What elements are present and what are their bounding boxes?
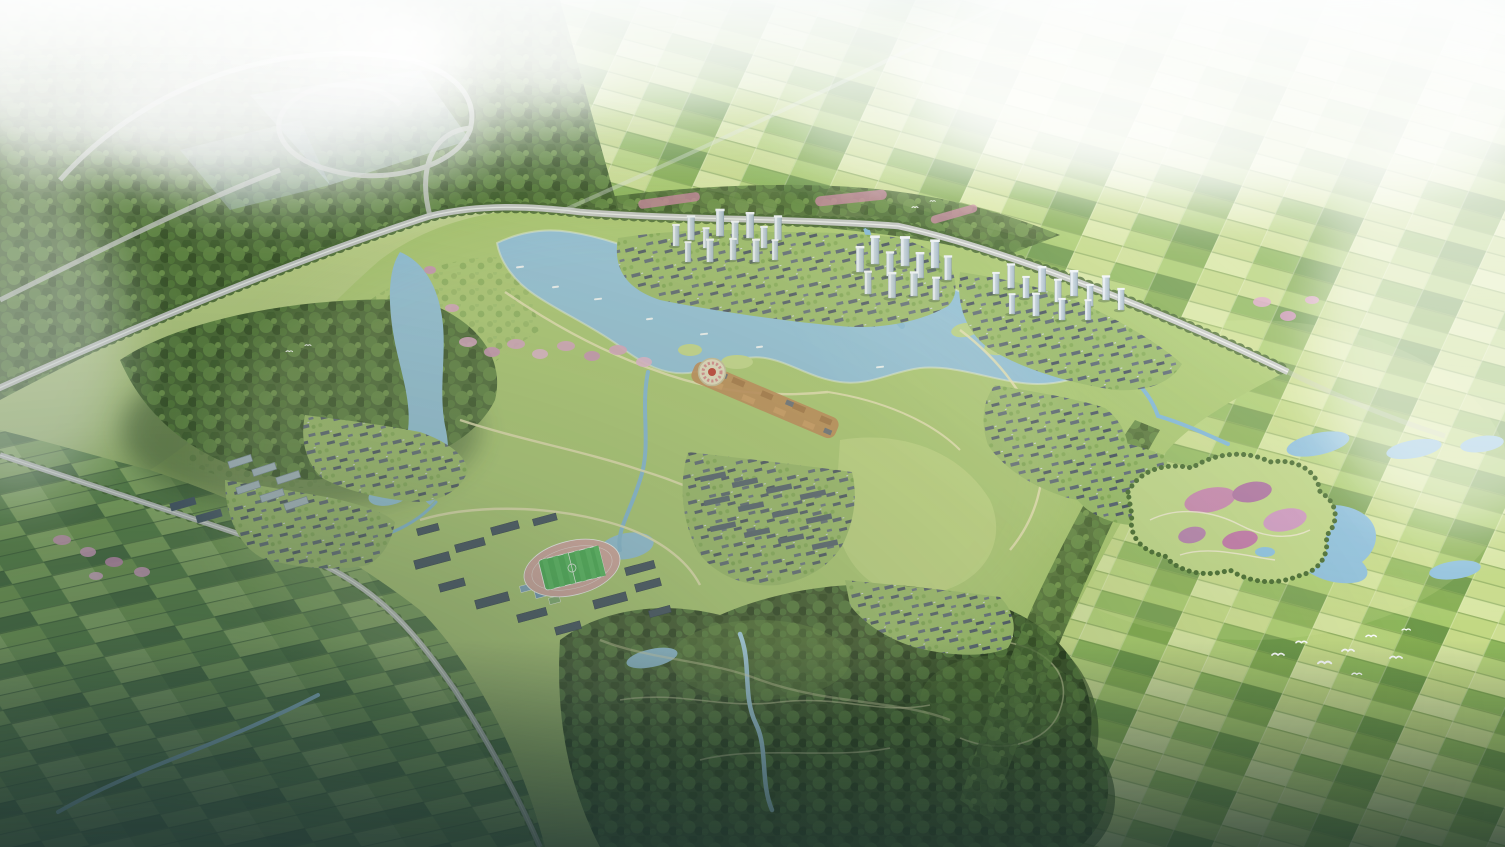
atmosphere [0,0,1505,847]
aerial-masterplan-render [0,0,1505,847]
corner-shadow-southwest [0,0,1505,847]
render-canvas [0,0,1505,847]
